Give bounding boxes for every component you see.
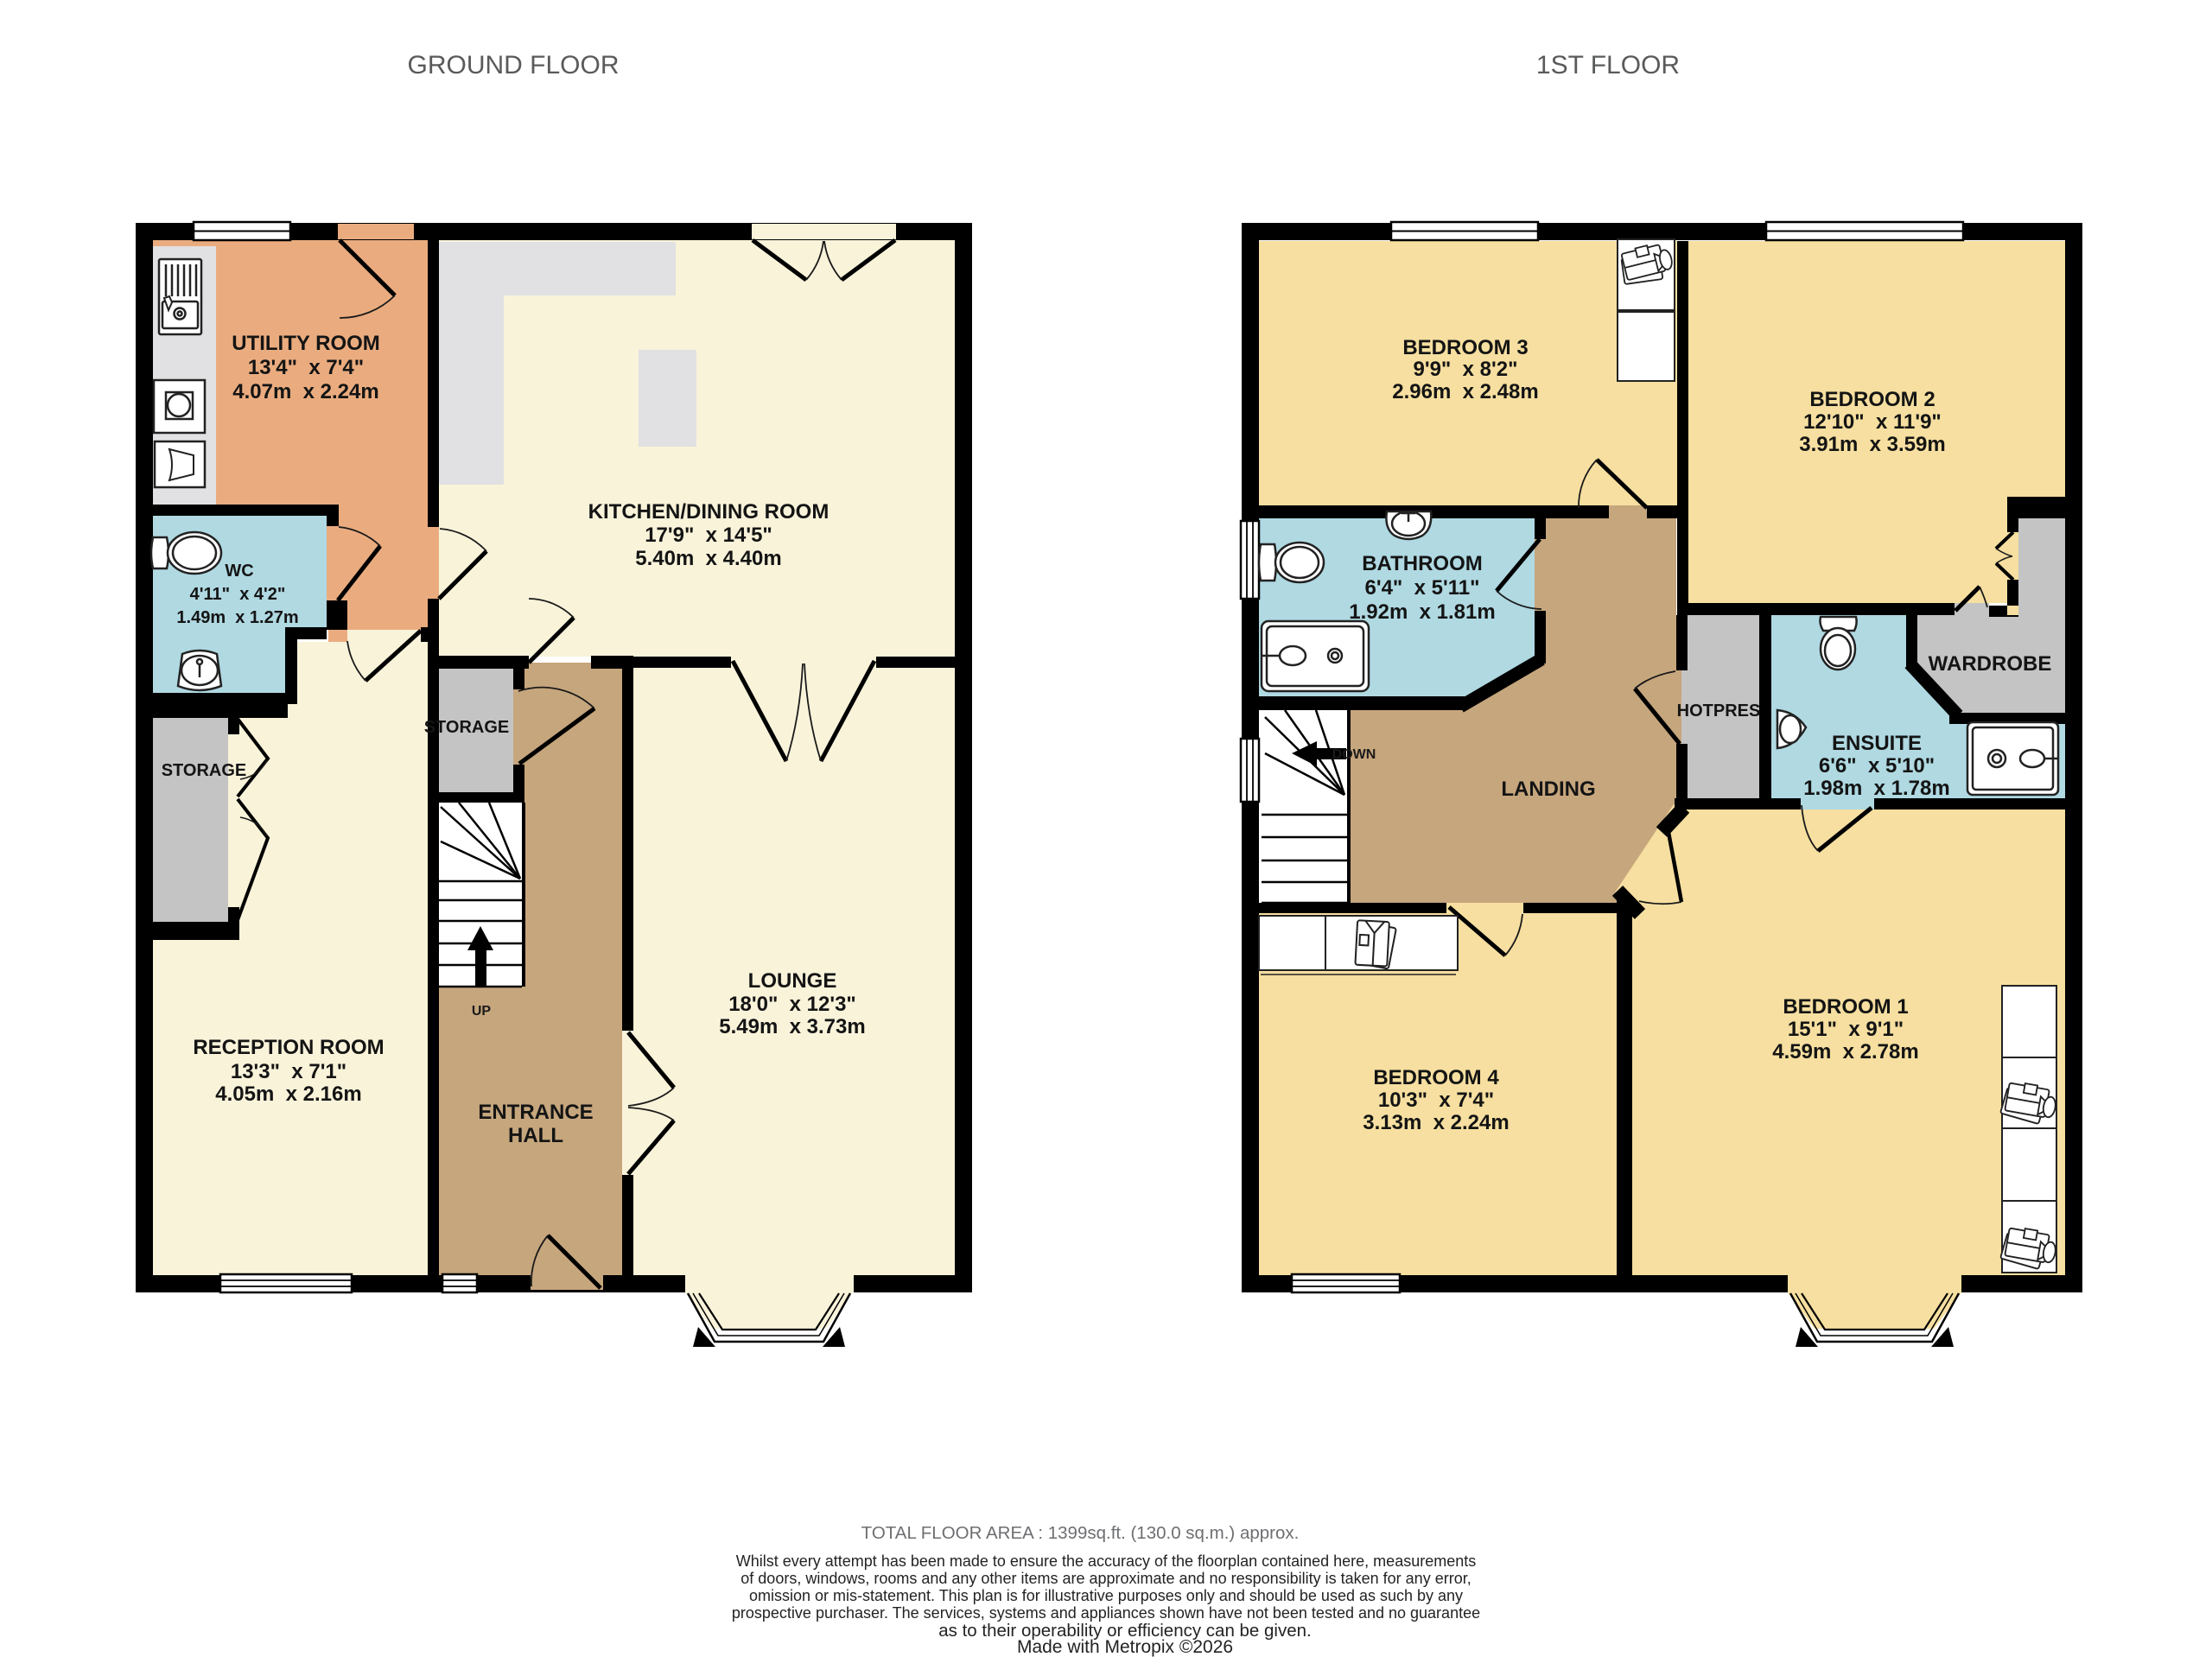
- svg-text:15'1" x 9'1": 15'1" x 9'1": [1788, 1018, 1904, 1041]
- svg-text:1.98m x 1.78m: 1.98m x 1.78m: [1803, 777, 1949, 800]
- svg-text:HALL: HALL: [508, 1124, 563, 1147]
- svg-text:WC: WC: [225, 562, 253, 581]
- svg-text:12'10" x 11'9": 12'10" x 11'9": [1803, 410, 1942, 434]
- svg-text:5.40m x 4.40m: 5.40m x 4.40m: [635, 547, 781, 570]
- svg-text:18'0" x 12'3": 18'0" x 12'3": [728, 993, 856, 1016]
- svg-text:BEDROOM 2: BEDROOM 2: [1809, 388, 1935, 411]
- svg-text:17'9" x 14'5": 17'9" x 14'5": [645, 524, 772, 547]
- svg-text:6'6" x 5'10": 6'6" x 5'10": [1819, 754, 1935, 778]
- svg-text:4'11" x 4'2": 4'11" x 4'2": [190, 585, 286, 604]
- svg-text:13'3" x 7'1": 13'3" x 7'1": [231, 1060, 346, 1083]
- svg-text:9'9" x 8'2": 9'9" x 8'2": [1414, 358, 1518, 381]
- svg-text:4.59m x 2.78m: 4.59m x 2.78m: [1772, 1040, 1918, 1063]
- svg-text:3.91m x 3.59m: 3.91m x 3.59m: [1799, 433, 1945, 456]
- svg-text:UP: UP: [472, 1004, 492, 1019]
- svg-text:LOUNGE: LOUNGE: [748, 969, 837, 993]
- svg-text:4.05m x 2.16m: 4.05m x 2.16m: [215, 1082, 361, 1106]
- svg-text:BEDROOM 4: BEDROOM 4: [1373, 1066, 1499, 1089]
- svg-text:prospective purchaser. The ser: prospective purchaser. The services, sys…: [732, 1604, 1480, 1622]
- svg-text:3.13m x 2.24m: 3.13m x 2.24m: [1363, 1111, 1509, 1134]
- svg-text:BEDROOM 1: BEDROOM 1: [1783, 995, 1908, 1019]
- svg-text:omission or mis-statement. Thi: omission or mis-statement. This plan is …: [749, 1587, 1463, 1604]
- svg-text:HOTPRES: HOTPRES: [1677, 702, 1761, 721]
- svg-text:GROUND FLOOR: GROUND FLOOR: [407, 51, 619, 79]
- svg-text:ENTRANCE: ENTRANCE: [478, 1101, 593, 1124]
- svg-text:KITCHEN/DINING ROOM: KITCHEN/DINING ROOM: [588, 500, 829, 524]
- svg-text:TOTAL FLOOR AREA : 1399sq.ft.: TOTAL FLOOR AREA : 1399sq.ft. (130.0 sq.…: [861, 1523, 1300, 1543]
- svg-text:RECEPTION ROOM: RECEPTION ROOM: [193, 1036, 384, 1059]
- svg-text:UTILITY ROOM: UTILITY ROOM: [232, 332, 380, 355]
- svg-text:10'3" x 7'4": 10'3" x 7'4": [1378, 1089, 1494, 1112]
- svg-text:5.49m x 3.73m: 5.49m x 3.73m: [719, 1015, 865, 1038]
- svg-text:1.92m x 1.81m: 1.92m x 1.81m: [1349, 600, 1495, 624]
- svg-text:1ST FLOOR: 1ST FLOOR: [1536, 51, 1680, 79]
- svg-text:DOWN: DOWN: [1332, 747, 1376, 762]
- svg-text:4.07m x 2.24m: 4.07m x 2.24m: [232, 380, 378, 403]
- svg-text:STORAGE: STORAGE: [424, 718, 510, 737]
- svg-text:6'4" x 5'11": 6'4" x 5'11": [1365, 576, 1480, 600]
- svg-text:of doors, windows, rooms and a: of doors, windows, rooms and any other i…: [741, 1570, 1471, 1587]
- svg-text:2.96m x 2.48m: 2.96m x 2.48m: [1392, 380, 1538, 403]
- svg-text:BEDROOM 3: BEDROOM 3: [1402, 336, 1528, 359]
- svg-text:STORAGE: STORAGE: [162, 761, 247, 780]
- svg-text:BATHROOM: BATHROOM: [1362, 552, 1483, 575]
- svg-text:WARDROBE: WARDROBE: [1929, 652, 2052, 676]
- svg-text:Made with Metropix ©2026: Made with Metropix ©2026: [1017, 1637, 1233, 1657]
- svg-text:1.49m x 1.27m: 1.49m x 1.27m: [176, 608, 298, 627]
- svg-text:ENSUITE: ENSUITE: [1832, 732, 1922, 755]
- svg-text:Whilst every attempt has been: Whilst every attempt has been made to en…: [736, 1552, 1476, 1570]
- svg-text:LANDING: LANDING: [1501, 778, 1595, 801]
- svg-text:13'4" x 7'4": 13'4" x 7'4": [248, 356, 364, 379]
